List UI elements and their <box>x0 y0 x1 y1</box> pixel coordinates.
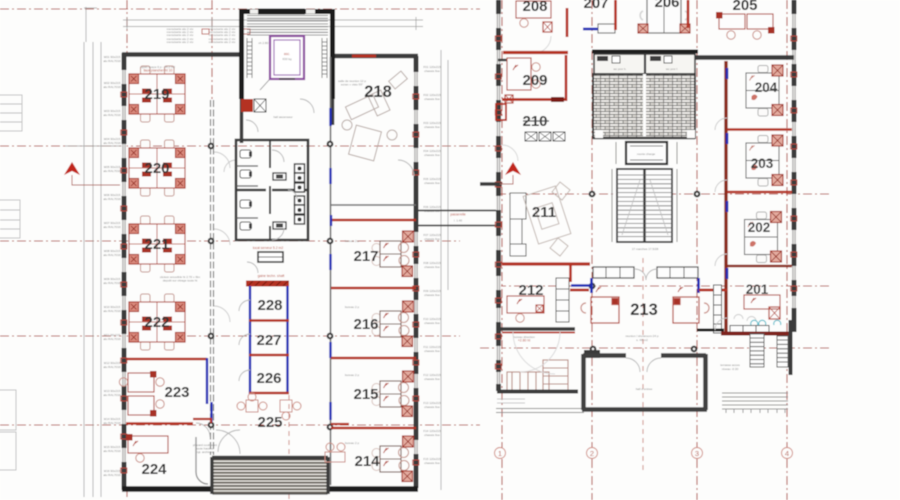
svg-text:hall ascenseur: hall ascenseur <box>273 115 292 119</box>
svg-text:chassis fixe: chassis fixe <box>424 461 440 465</box>
svg-text:chassis fixe: chassis fixe <box>424 237 440 241</box>
svg-text:bureau 2 p: bureau 2 p <box>345 441 360 445</box>
svg-text:passerelle: passerelle <box>450 213 466 217</box>
svg-text:225: 225 <box>257 414 282 431</box>
svg-text:216: 216 <box>353 316 378 333</box>
svg-text:17 marches 17.5/28: 17 marches 17.5/28 <box>632 247 659 251</box>
svg-text:alu RAL7016: alu RAL7016 <box>103 141 121 145</box>
svg-text:chassis fixe: chassis fixe <box>424 69 440 73</box>
svg-text:bureau 2 p: bureau 2 p <box>345 373 360 377</box>
svg-text:203: 203 <box>751 156 774 171</box>
svg-text:211: 211 <box>532 204 556 221</box>
svg-text:chassis fixe: chassis fixe <box>424 293 440 297</box>
svg-text:chassis fixe: chassis fixe <box>424 377 440 381</box>
svg-text:bureau 2 p: bureau 2 p <box>345 305 360 309</box>
svg-text:alu RAL7016: alu RAL7016 <box>103 393 121 397</box>
svg-text:220: 220 <box>144 160 169 177</box>
svg-text:alu RAL7016: alu RAL7016 <box>103 337 121 341</box>
svg-text:alu RAL7016: alu RAL7016 <box>103 225 121 229</box>
svg-text:wc pmr h.: wc pmr h. <box>613 67 626 71</box>
svg-text:ecran + visio 55": ecran + visio 55" <box>341 83 363 87</box>
svg-text:3: 3 <box>695 449 699 458</box>
svg-text:faux plancher ht 10: faux plancher ht 10 <box>144 69 173 73</box>
svg-text:217: 217 <box>353 248 378 265</box>
svg-text:2: 2 <box>590 449 594 458</box>
svg-text:monte charge: monte charge <box>637 152 656 156</box>
svg-text:201: 201 <box>746 282 769 297</box>
svg-text:204: 204 <box>755 80 778 95</box>
svg-text:alu RAL7016: alu RAL7016 <box>103 421 121 425</box>
svg-text:218: 218 <box>364 83 392 101</box>
svg-text:1: 1 <box>498 449 502 458</box>
svg-text:niveau -0.30: niveau -0.30 <box>722 367 739 371</box>
svg-text:alu RAL7016: alu RAL7016 <box>103 473 121 477</box>
svg-text:bureau 2 p: bureau 2 p <box>345 239 360 243</box>
svg-text:202: 202 <box>748 220 771 235</box>
svg-text:630 kg: 630 kg <box>282 57 291 61</box>
svg-text:rgt. archives: rgt. archives <box>197 450 214 454</box>
svg-text:224: 224 <box>141 461 167 478</box>
svg-text:alu RAL7016: alu RAL7016 <box>103 113 121 117</box>
svg-text:chassis fixe: chassis fixe <box>424 349 440 353</box>
svg-text:226: 226 <box>256 370 281 387</box>
svg-text:s. 48 m2: s. 48 m2 <box>636 338 648 342</box>
svg-text:221: 221 <box>144 236 169 253</box>
svg-text:alu RAL7016: alu RAL7016 <box>103 309 121 313</box>
svg-text:menuiserie alu 2 vtx: menuiserie alu 2 vtx <box>209 40 236 44</box>
svg-text:alu RAL7016: alu RAL7016 <box>103 197 121 201</box>
svg-text:215: 215 <box>353 386 378 403</box>
svg-text:228: 228 <box>257 297 282 314</box>
svg-text:l. 1.40: l. 1.40 <box>454 219 463 223</box>
svg-text:wc pmr f.: wc pmr f. <box>666 67 678 71</box>
svg-text:207: 207 <box>583 0 608 12</box>
svg-text:chassis fixe: chassis fixe <box>424 153 440 157</box>
svg-text:214: 214 <box>354 453 380 470</box>
svg-text:alu RAL7016: alu RAL7016 <box>103 59 121 63</box>
svg-text:alu RAL7016: alu RAL7016 <box>103 85 121 89</box>
svg-text:chassis fixe: chassis fixe <box>424 125 440 129</box>
svg-text:hall d entree: hall d entree <box>636 387 653 391</box>
svg-text:227: 227 <box>256 332 281 349</box>
svg-text:206: 206 <box>654 0 679 11</box>
svg-text:213: 213 <box>630 301 658 319</box>
svg-text:209: 209 <box>522 72 547 89</box>
svg-text:223: 223 <box>164 384 189 401</box>
svg-text:chassis fixe: chassis fixe <box>424 405 440 409</box>
svg-text:menuiserie alu 2 vtx: menuiserie alu 2 vtx <box>167 40 194 44</box>
svg-text:chassis fixe: chassis fixe <box>424 97 440 101</box>
svg-text:depolit sur vitrage toute ht: depolit sur vitrage toute ht <box>163 279 198 283</box>
svg-text:asc.: asc. <box>284 52 290 56</box>
svg-text:chassis fixe: chassis fixe <box>424 433 440 437</box>
svg-text:222: 222 <box>144 314 169 331</box>
svg-text:chassis fixe: chassis fixe <box>424 181 440 185</box>
svg-text:205: 205 <box>732 0 757 14</box>
svg-text:gaine techn. shaft: gaine techn. shaft <box>258 274 285 278</box>
svg-text:chassis fixe: chassis fixe <box>424 321 440 325</box>
svg-text:alu RAL7016: alu RAL7016 <box>103 449 121 453</box>
svg-text:alu RAL7016: alu RAL7016 <box>103 365 121 369</box>
svg-text:alu RAL7016: alu RAL7016 <box>103 281 121 285</box>
svg-text:4: 4 <box>785 449 789 458</box>
svg-text:208: 208 <box>522 0 547 15</box>
svg-text:+2.80 ht: +2.80 ht <box>518 339 530 343</box>
svg-text:219: 219 <box>144 86 169 103</box>
svg-text:alu RAL7016: alu RAL7016 <box>103 169 121 173</box>
svg-text:local serveur 5.2 m2: local serveur 5.2 m2 <box>253 246 284 250</box>
svg-text:chassis fixe: chassis fixe <box>424 265 440 269</box>
svg-text:alu RAL7016: alu RAL7016 <box>103 253 121 257</box>
